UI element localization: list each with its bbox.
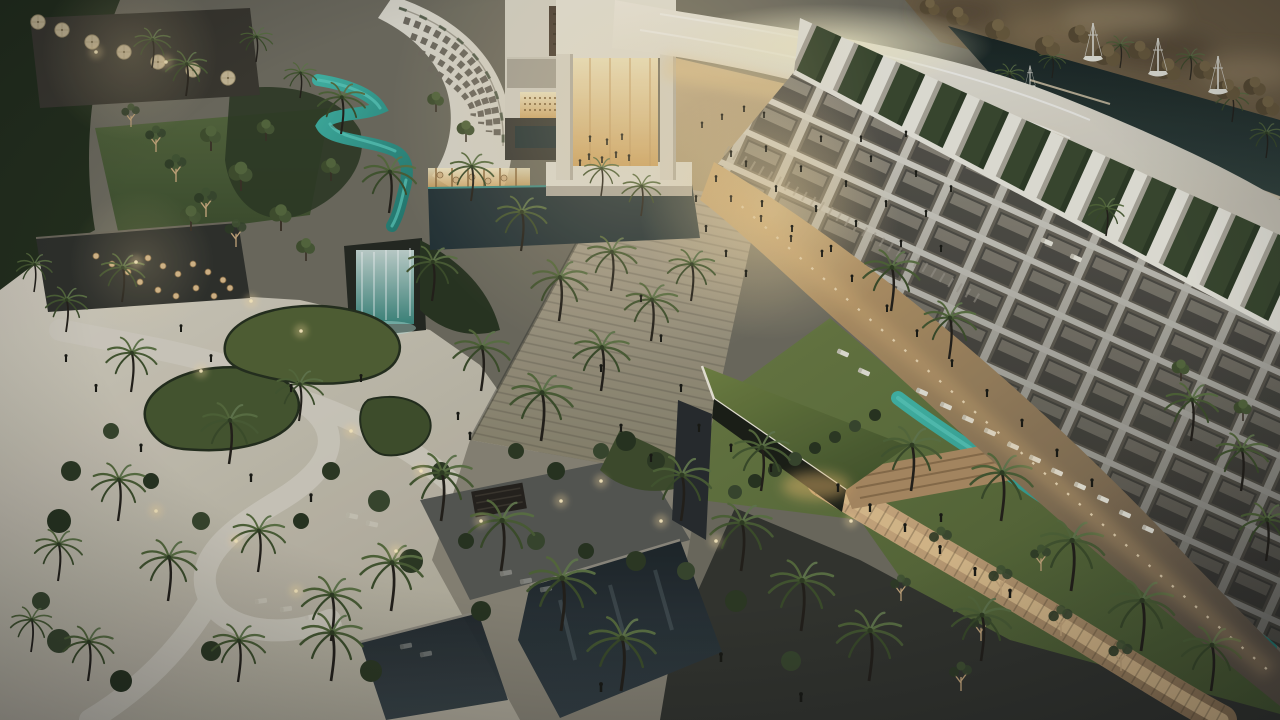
vignette: [0, 0, 1280, 720]
resort-aerial-rendering-image: [0, 0, 1280, 720]
resort-aerial-rendering: [0, 0, 1280, 720]
atmosphere-overlays: [0, 0, 1280, 720]
